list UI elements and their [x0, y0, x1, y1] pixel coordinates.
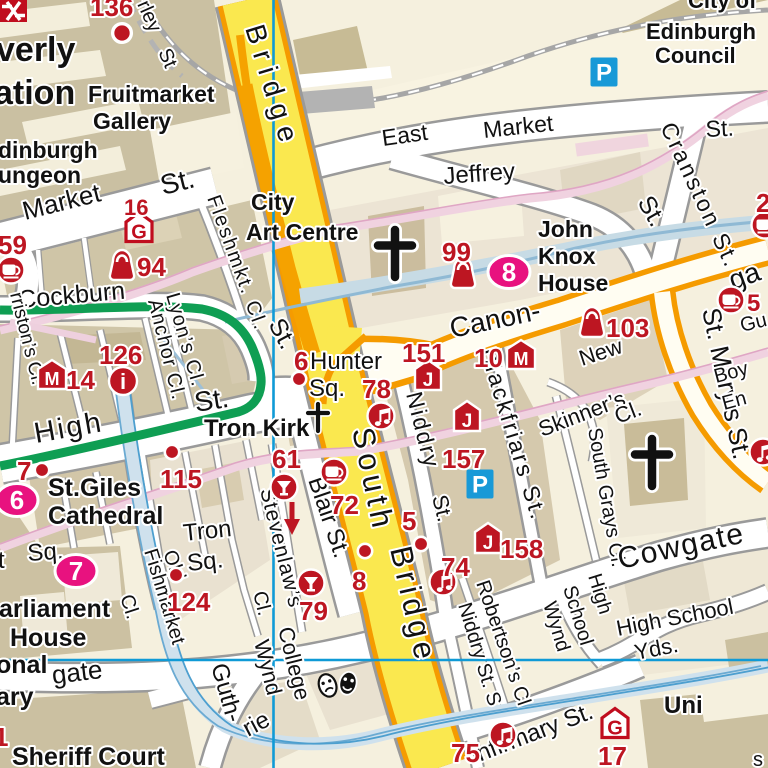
svg-text:14: 14	[66, 365, 95, 395]
svg-text:75: 75	[451, 738, 480, 768]
svg-text:Art Centre: Art Centre	[246, 219, 358, 245]
svg-text:151: 151	[402, 338, 445, 368]
svg-text:St.Giles: St.Giles	[48, 474, 141, 502]
svg-text:6: 6	[294, 346, 308, 376]
svg-text:72: 72	[330, 490, 359, 520]
svg-text:124: 124	[167, 587, 211, 617]
svg-text:78: 78	[362, 374, 391, 404]
svg-text:Sq.: Sq.	[186, 546, 225, 577]
svg-text:arliament: arliament	[0, 595, 111, 623]
svg-text:Jeffrey: Jeffrey	[443, 158, 516, 190]
svg-text:8: 8	[502, 257, 516, 287]
svg-text:17: 17	[598, 741, 627, 768]
svg-text:7: 7	[17, 456, 31, 486]
svg-text:126: 126	[99, 340, 142, 370]
svg-text:Knox: Knox	[538, 243, 596, 269]
svg-text:Fruitmarket: Fruitmarket	[88, 81, 215, 107]
svg-text:79: 79	[299, 596, 328, 626]
svg-text:Tron Kirk: Tron Kirk	[204, 415, 310, 442]
svg-text:59: 59	[0, 230, 27, 260]
svg-text:Council: Council	[655, 43, 736, 68]
svg-text:136: 136	[90, 0, 133, 22]
svg-text:157: 157	[442, 444, 485, 474]
svg-text:verly: verly	[0, 31, 75, 69]
svg-text:House: House	[10, 624, 87, 652]
svg-text:ungeon: ungeon	[0, 162, 81, 188]
svg-text:gate: gate	[50, 654, 104, 690]
svg-text:16: 16	[124, 195, 148, 220]
svg-text:City of: City of	[688, 0, 757, 13]
svg-text:99: 99	[442, 237, 471, 267]
svg-text:94: 94	[137, 252, 166, 282]
svg-text:8: 8	[352, 566, 366, 596]
svg-text:Edinburgh: Edinburgh	[646, 19, 756, 44]
svg-text:t: t	[0, 547, 5, 574]
svg-text:Cathedral: Cathedral	[48, 502, 163, 530]
svg-text:s: s	[753, 749, 763, 768]
svg-text:6: 6	[10, 485, 24, 515]
svg-text:10: 10	[474, 343, 503, 373]
svg-text:158: 158	[500, 534, 543, 564]
svg-text:7: 7	[69, 556, 83, 586]
svg-text:Sq.: Sq.	[309, 375, 345, 402]
svg-text:City: City	[251, 189, 295, 215]
svg-text:dinburgh: dinburgh	[0, 137, 98, 163]
svg-text:onal: onal	[0, 651, 47, 679]
svg-text:61: 61	[272, 444, 301, 474]
svg-text:5: 5	[747, 290, 760, 317]
svg-text:St.: St.	[192, 382, 231, 418]
svg-text:House: House	[538, 270, 608, 296]
svg-text:74: 74	[441, 552, 470, 582]
svg-text:103: 103	[606, 313, 649, 343]
svg-text:2: 2	[756, 188, 768, 218]
svg-text:St.: St.	[705, 115, 734, 142]
svg-text:John: John	[538, 216, 593, 242]
svg-text:ary: ary	[0, 683, 34, 711]
svg-text:1: 1	[0, 722, 8, 752]
svg-text:Uni: Uni	[664, 692, 703, 719]
svg-text:115: 115	[160, 464, 202, 494]
svg-text:Gallery: Gallery	[93, 108, 171, 134]
svg-text:Tron: Tron	[182, 515, 233, 547]
svg-text:ation: ation	[0, 74, 75, 112]
svg-text:5: 5	[402, 506, 416, 536]
svg-text:Sheriff Court: Sheriff Court	[12, 743, 165, 768]
svg-text:Hunter: Hunter	[310, 348, 382, 375]
